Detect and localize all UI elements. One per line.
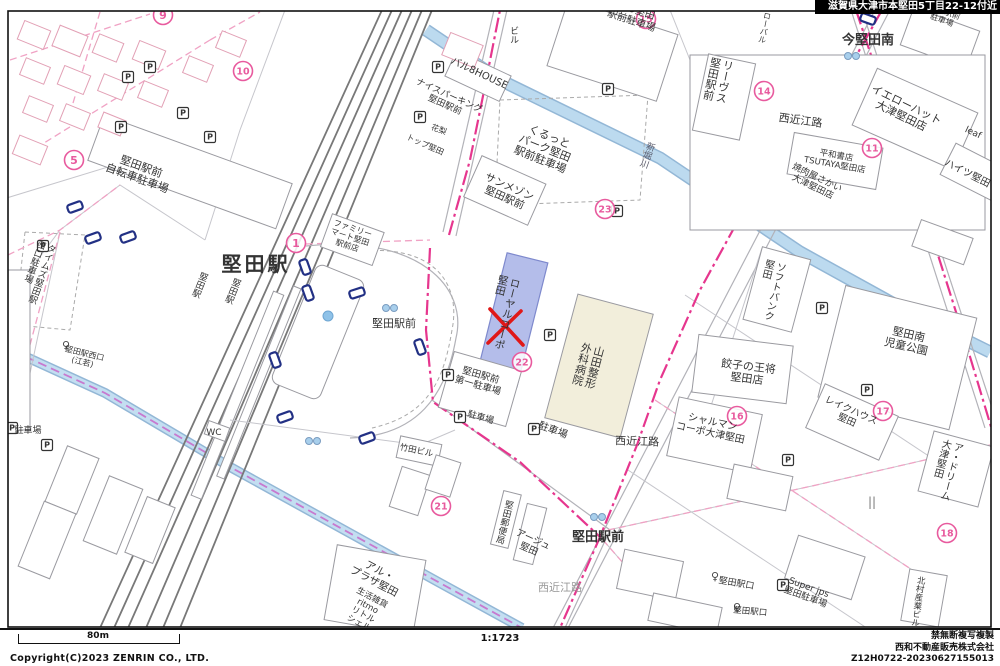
parked-car-icon xyxy=(120,231,137,244)
scale-bar xyxy=(18,634,180,644)
circled-number-marker: 10 xyxy=(234,62,253,81)
parking-icon: P xyxy=(433,62,444,73)
zenrin-map-page: PPPPPPPPPPPPPPPPPPPP♀♀♀ 1591011141516171… xyxy=(0,0,1000,666)
parking-icon: P xyxy=(603,84,614,95)
print-code: Z12H0722-20230627155013 xyxy=(851,654,994,666)
map-label: 堅田駅口 xyxy=(733,606,768,619)
parked-car-icon xyxy=(359,432,376,445)
svg-text:花梨: 花梨 xyxy=(430,122,448,137)
map-label: ローバル xyxy=(757,11,772,44)
traffic-signal-icon xyxy=(306,438,321,445)
svg-text:P: P xyxy=(864,386,870,395)
address-label: 滋賀県大津市本堅田5丁目22-12付近 xyxy=(828,1,997,12)
map-label: 今堅田南 xyxy=(841,32,894,48)
parking-icon: P xyxy=(443,370,454,381)
parking-icon: P xyxy=(783,455,794,466)
map-label: WC xyxy=(206,428,221,438)
map-label: 西近江路 xyxy=(615,434,659,449)
al-plaza-building xyxy=(324,545,426,635)
map-label: くるっとパーク堅田駅前駐車場 xyxy=(512,120,577,176)
parked-car-icon xyxy=(299,259,312,276)
map-label: 堅田駅口 xyxy=(718,575,755,592)
parked-car-icon xyxy=(85,232,102,245)
map-canvas: PPPPPPPPPPPPPPPPPPPP♀♀♀ 1591011141516171… xyxy=(0,0,1000,666)
map-footer: 80m 1:1723 Copyright(C)2023 ZENRIN CO., … xyxy=(0,628,1000,666)
parking-icon: P xyxy=(42,440,53,451)
svg-text:堅田駅: 堅田駅 xyxy=(222,252,291,276)
svg-text:くるっとパーク堅田駅前駐車場: くるっとパーク堅田駅前駐車場 xyxy=(512,120,577,176)
map-label: 堅田駅西口(江若) xyxy=(62,344,105,371)
svg-text:10: 10 xyxy=(236,66,250,77)
svg-text:P: P xyxy=(785,456,791,465)
circled-number-marker: 9 xyxy=(154,6,173,25)
svg-text:P: P xyxy=(118,123,124,132)
svg-text:トップ堅田: トップ堅田 xyxy=(405,132,445,156)
parking-icon: P xyxy=(862,385,873,396)
svg-text:P: P xyxy=(180,109,186,118)
katata-station-building xyxy=(270,263,366,401)
svg-text:P: P xyxy=(819,304,825,313)
svg-text:5: 5 xyxy=(70,154,78,167)
svg-text:P: P xyxy=(457,413,463,422)
parking-icon: P xyxy=(178,108,189,119)
parking-icon: P xyxy=(415,112,426,123)
no-copy-notice: 禁無断複写複製 xyxy=(851,631,994,643)
svg-text:ビル: ビル xyxy=(508,26,519,44)
map-label: 駐車場 xyxy=(14,424,41,436)
circled-number-marker: 21 xyxy=(432,497,451,516)
parked-car-icon xyxy=(860,13,877,26)
svg-text:23: 23 xyxy=(598,204,611,215)
svg-text:P: P xyxy=(207,133,213,142)
parked-car-icon xyxy=(414,339,427,356)
parking-icon: P xyxy=(455,412,466,423)
circled-number-marker: 5 xyxy=(65,151,84,170)
map-label: 西近江路 xyxy=(538,581,582,594)
parking-icon: P xyxy=(817,303,828,314)
svg-text:18: 18 xyxy=(940,528,954,539)
svg-text:堅田駅前: 堅田駅前 xyxy=(572,529,624,545)
svg-text:西近江路: 西近江路 xyxy=(538,581,582,594)
company-name: 西和不動産販売株式会社 xyxy=(851,643,994,655)
svg-text:P: P xyxy=(445,371,451,380)
circled-number-marker: 23 xyxy=(596,200,615,219)
svg-text:堅田駅前: 堅田駅前 xyxy=(372,316,416,330)
svg-text:P: P xyxy=(125,73,131,82)
map-content: PPPPPPPPPPPPPPPPPPPP♀♀♀ 1591011141516171… xyxy=(0,0,1000,650)
map-label: 堅田駅 xyxy=(222,252,291,276)
fountain-icon xyxy=(323,311,333,321)
svg-text:西近江路: 西近江路 xyxy=(615,434,659,449)
circled-number-marker: 11 xyxy=(863,139,882,158)
svg-text:WC: WC xyxy=(206,428,221,438)
traffic-signal-icon xyxy=(383,305,398,312)
svg-text:P: P xyxy=(605,85,611,94)
svg-text:駐車場: 駐車場 xyxy=(14,424,41,436)
svg-text:||: || xyxy=(868,495,876,509)
parked-car-icon xyxy=(277,411,294,424)
svg-text:P: P xyxy=(417,113,423,122)
svg-text:堅田駅西口(江若): 堅田駅西口(江若) xyxy=(62,344,105,371)
parked-car-icon xyxy=(269,352,282,369)
address-bar: 滋賀県大津市本堅田5丁目22-12付近 xyxy=(815,0,1000,14)
legal-block: 禁無断複写複製 西和不動産販売株式会社 Z12H0722-20230627155… xyxy=(851,631,994,666)
svg-text:今堅田南: 今堅田南 xyxy=(841,32,894,48)
svg-text:ローバル: ローバル xyxy=(757,11,772,44)
svg-text:1: 1 xyxy=(292,237,300,250)
svg-text:堅田駅口: 堅田駅口 xyxy=(718,575,755,592)
map-label: || xyxy=(868,495,876,509)
svg-text:P: P xyxy=(435,63,441,72)
circled-number-marker: 14 xyxy=(755,82,774,101)
parking-icon: P xyxy=(123,72,134,83)
map-label: トップ堅田 xyxy=(405,132,445,156)
traffic-signal-icon xyxy=(591,514,606,521)
circled-number-marker: 22 xyxy=(513,353,532,372)
scale-ratio: 1:1723 xyxy=(420,633,580,644)
circled-number-marker: 1 xyxy=(287,234,306,253)
svg-text:22: 22 xyxy=(515,357,528,368)
svg-text:堅田駅: 堅田駅 xyxy=(222,276,242,306)
circled-number-marker: 18 xyxy=(938,524,957,543)
copyright-text: Copyright(C)2023 ZENRIN CO., LTD. xyxy=(10,653,209,664)
svg-text:14: 14 xyxy=(757,86,771,97)
svg-text:P: P xyxy=(547,331,553,340)
svg-text:21: 21 xyxy=(434,501,447,512)
svg-text:堅田駅: 堅田駅 xyxy=(189,270,209,300)
map-label: 花梨 xyxy=(430,122,448,137)
map-label: ビル xyxy=(508,26,519,44)
map-label: 堅田駅 xyxy=(222,276,242,306)
svg-text:11: 11 xyxy=(865,143,878,154)
svg-text:P: P xyxy=(147,63,153,72)
parking-icon: P xyxy=(205,132,216,143)
map-label: 堅田駅前 xyxy=(372,316,416,330)
map-label: 堅田駅前 xyxy=(572,529,624,545)
parking-icon: P xyxy=(116,122,127,133)
svg-text:P: P xyxy=(531,425,537,434)
map-label: 堅田駅 xyxy=(189,270,209,300)
svg-text:堅田駅口: 堅田駅口 xyxy=(733,606,768,619)
parked-car-icon xyxy=(67,201,84,214)
svg-text:P: P xyxy=(44,441,50,450)
svg-text:17: 17 xyxy=(876,406,889,417)
parking-icon: P xyxy=(145,62,156,73)
parking-icon: P xyxy=(545,330,556,341)
